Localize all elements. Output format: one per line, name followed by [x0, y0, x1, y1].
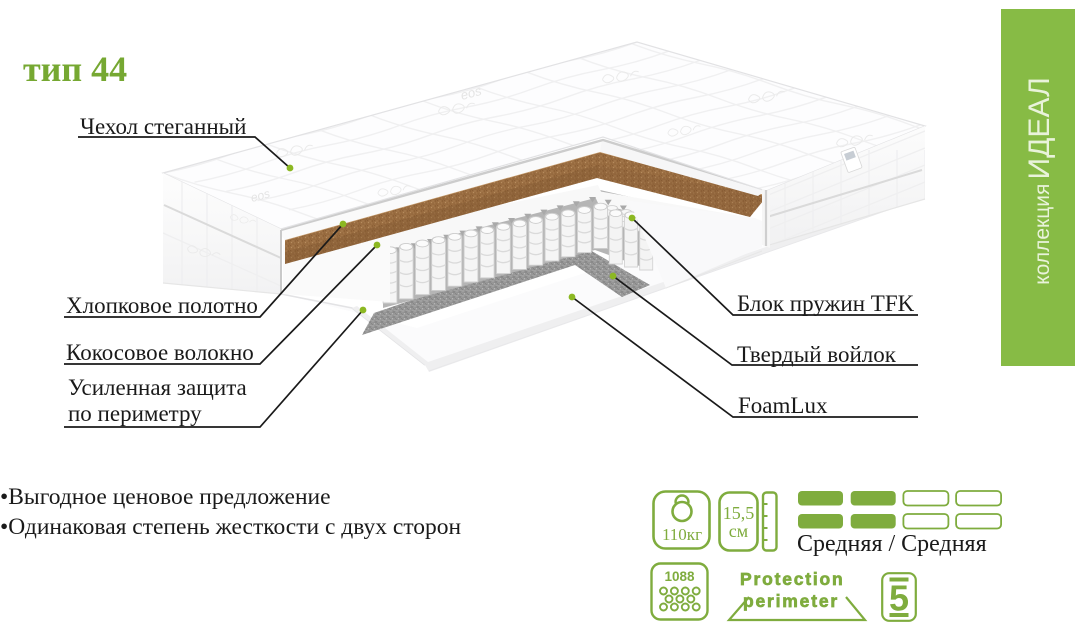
svg-text:5: 5 — [889, 578, 909, 619]
svg-text:110кг: 110кг — [662, 525, 702, 544]
svg-text:15,5: 15,5 — [723, 503, 755, 523]
svg-text:см: см — [729, 521, 748, 541]
svg-text:perimeter: perimeter — [743, 591, 839, 611]
svg-text:Protection: Protection — [740, 569, 845, 589]
svg-text:1088: 1088 — [664, 569, 695, 584]
